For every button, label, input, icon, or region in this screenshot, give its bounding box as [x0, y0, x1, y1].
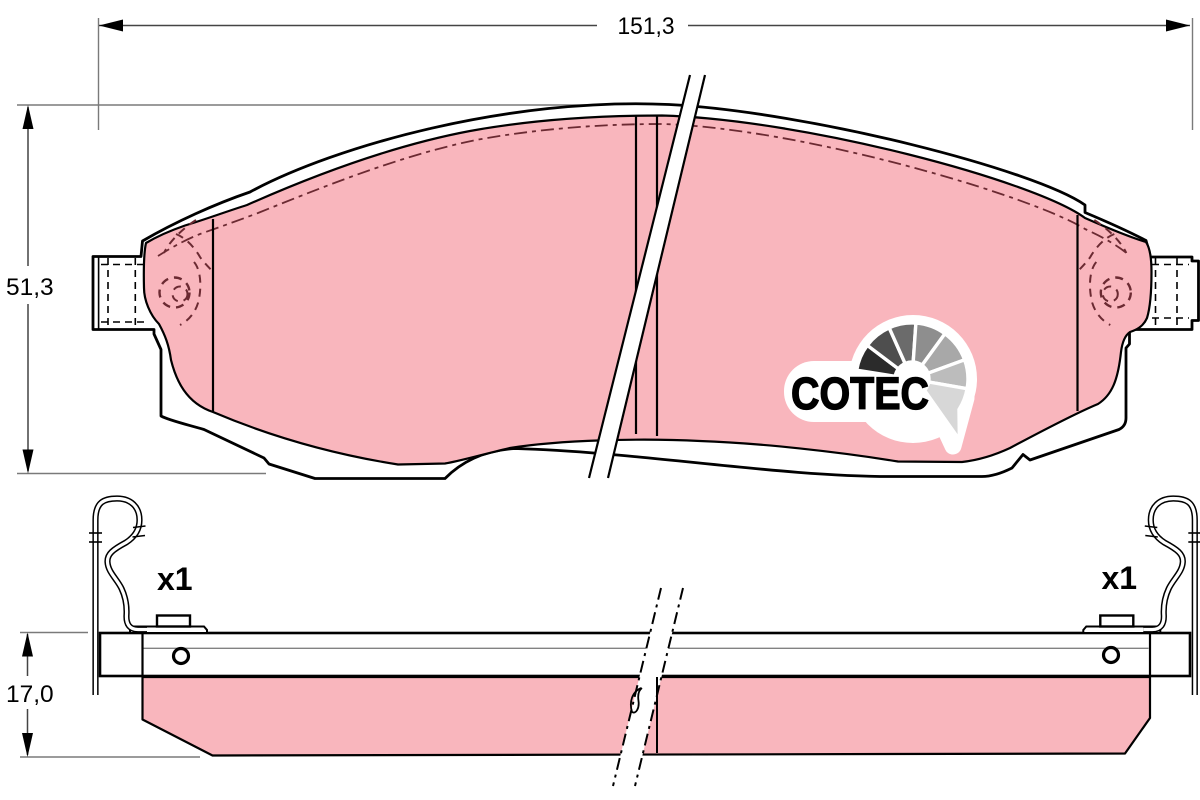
svg-text:51,3: 51,3: [6, 274, 54, 301]
svg-text:x1: x1: [157, 561, 193, 597]
svg-text:17,0: 17,0: [6, 681, 54, 708]
svg-text:151,3: 151,3: [618, 13, 675, 40]
svg-text:COTEC: COTEC: [791, 368, 929, 419]
svg-text:x1: x1: [1102, 560, 1138, 596]
